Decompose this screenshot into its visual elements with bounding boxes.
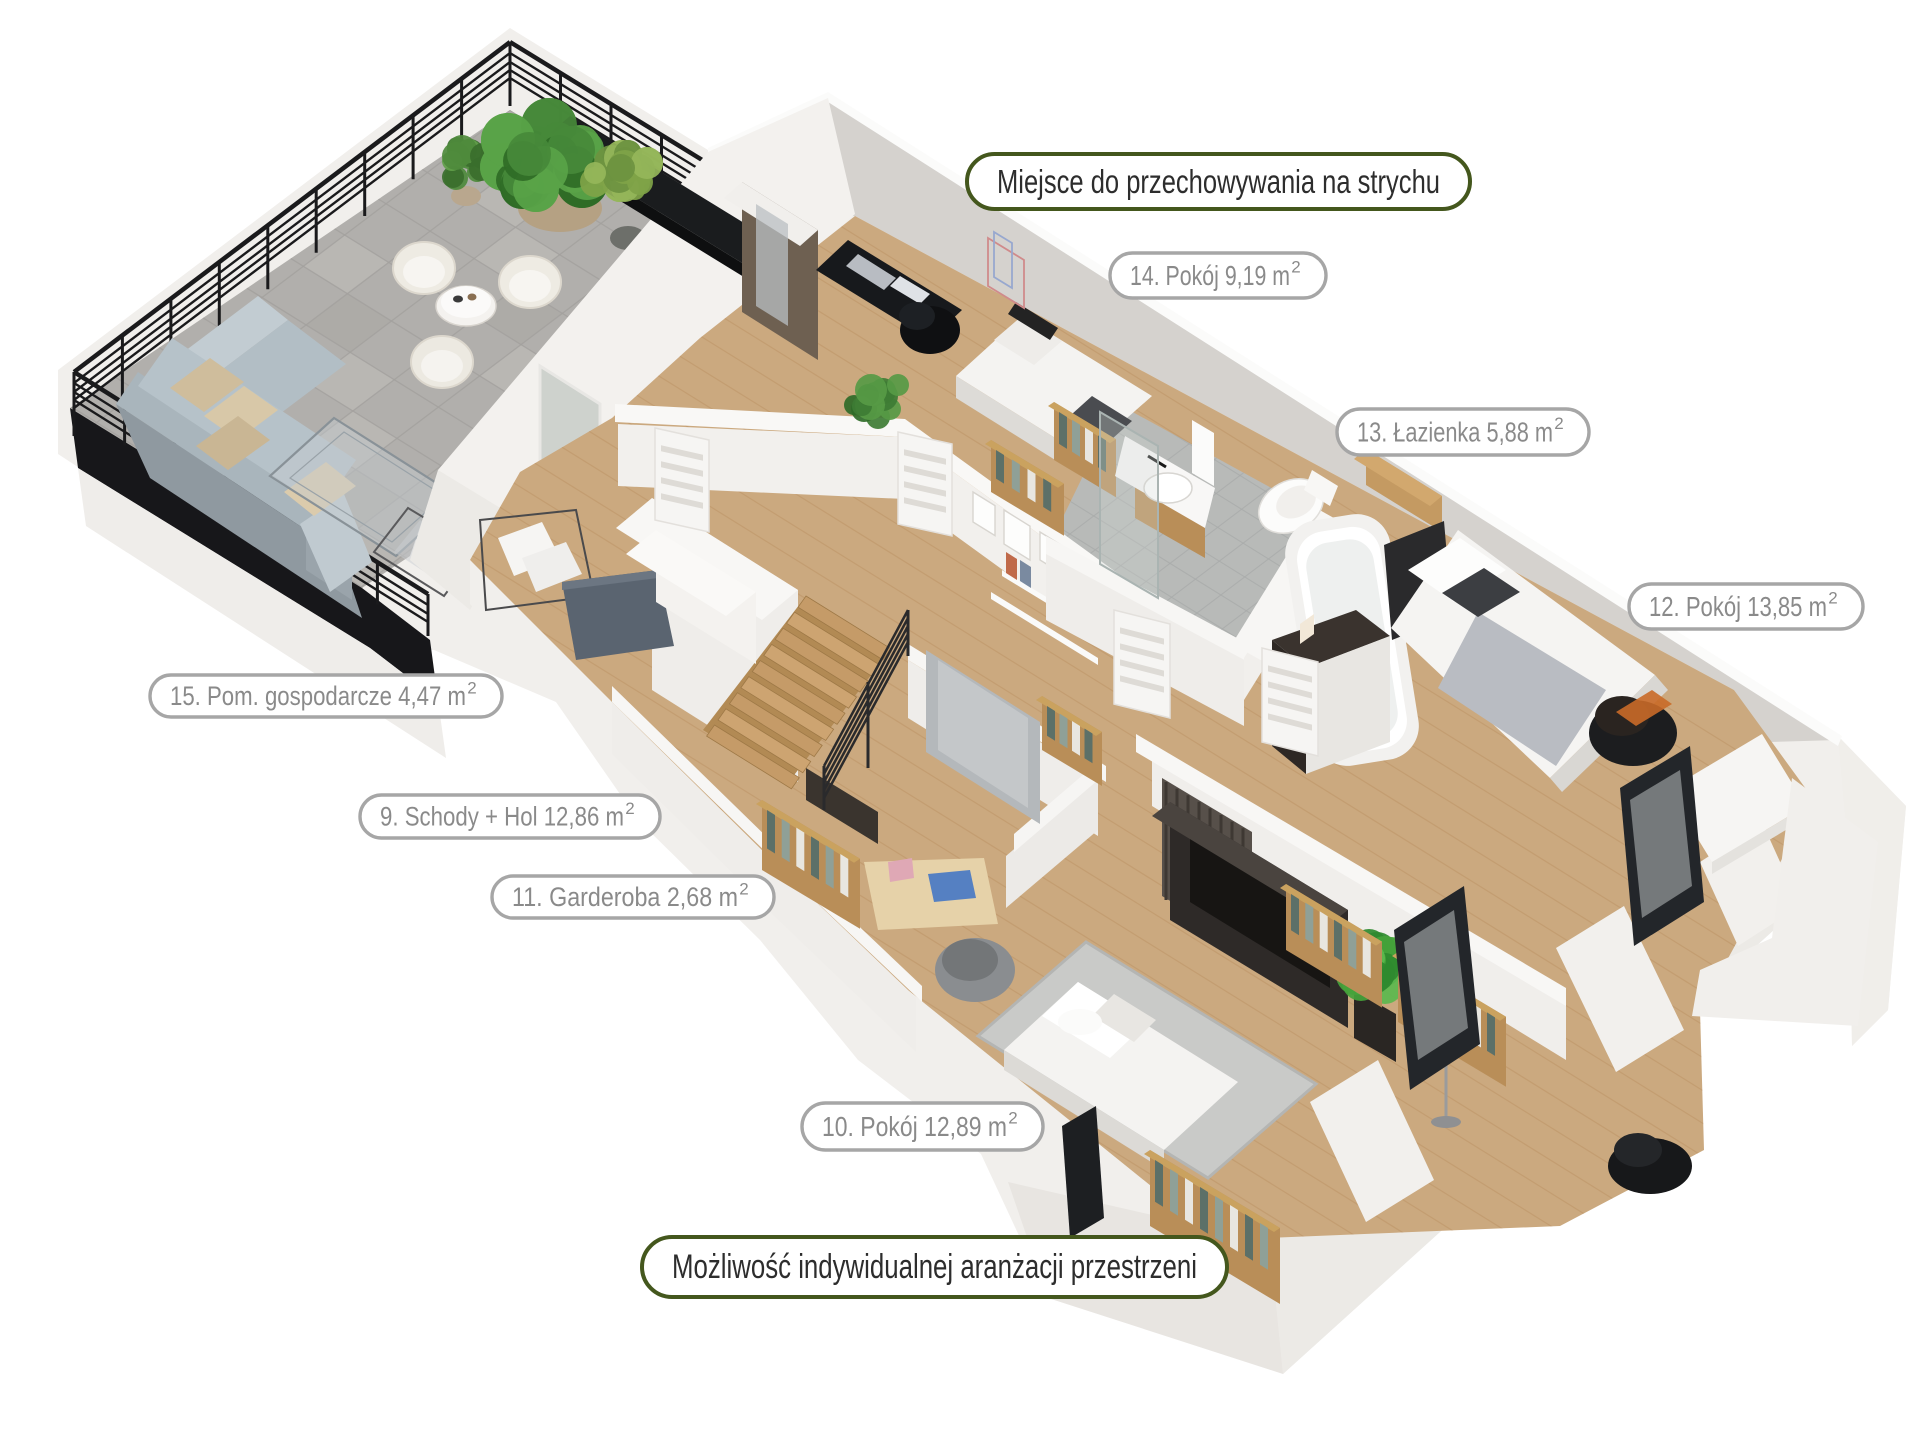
svg-text:2: 2 xyxy=(1554,414,1563,433)
svg-text:9. Schody + Hol 12,86 m: 9. Schody + Hol 12,86 m xyxy=(380,802,624,832)
svg-text:15. Pom. gospodarcze 4,47 m: 15. Pom. gospodarcze 4,47 m xyxy=(170,681,466,711)
svg-text:2: 2 xyxy=(625,799,634,818)
svg-text:2: 2 xyxy=(739,879,748,898)
svg-text:2: 2 xyxy=(1291,258,1300,277)
svg-text:14. Pokój 9,19 m: 14. Pokój 9,19 m xyxy=(1130,260,1290,291)
svg-text:13. Łazienka 5,88 m: 13. Łazienka 5,88 m xyxy=(1357,417,1553,448)
svg-text:Możliwość indywidualnej aranża: Możliwość indywidualnej aranżacji przest… xyxy=(672,1248,1197,1286)
svg-text:12. Pokój 13,85 m: 12. Pokój 13,85 m xyxy=(1649,591,1827,622)
svg-text:2: 2 xyxy=(1008,1109,1017,1128)
svg-text:2: 2 xyxy=(1828,589,1837,608)
svg-text:11. Garderoba 2,68 m: 11. Garderoba 2,68 m xyxy=(512,882,738,912)
svg-text:10. Pokój 12,89 m: 10. Pokój 12,89 m xyxy=(822,1111,1007,1142)
svg-text:2: 2 xyxy=(467,678,476,697)
svg-text:Miejsce do przechowywania na s: Miejsce do przechowywania na strychu xyxy=(997,163,1440,200)
